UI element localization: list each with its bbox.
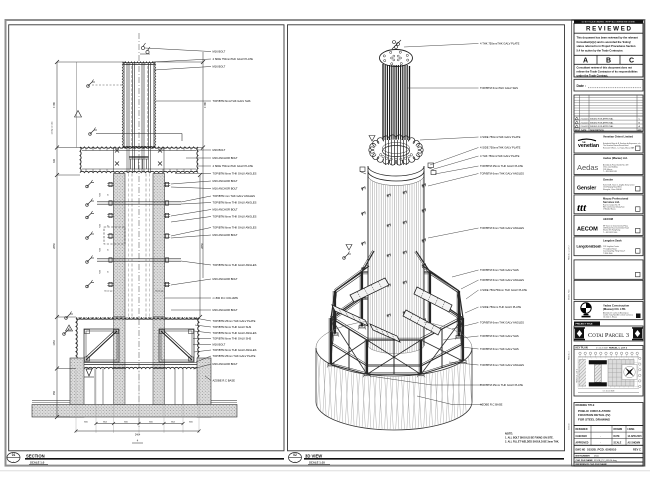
svg-text:TOP/BTM 6mm THK GALV ANGLES: TOP/BTM 6mm THK GALV ANGLES: [213, 348, 257, 352]
svg-text:2464: 2464: [135, 434, 141, 437]
svg-text:This document has been reviewe: This document has been reviewed by the r…: [577, 36, 638, 40]
svg-text:05/0510: 05/0510: [569, 424, 571, 431]
svg-text:M16 ANCHOR BOLT: M16 ANCHOR BOLT: [213, 187, 238, 191]
svg-text:status referred to in Projec: status referred to in Project Procedures…: [577, 44, 636, 48]
svg-text:2850: 2850: [200, 243, 204, 249]
svg-text:14-APR-2015: 14-APR-2015: [628, 435, 643, 438]
svg-text:∅ 800 R.C COLUMN: ∅ 800 R.C COLUMN: [213, 296, 238, 300]
svg-text:Shanghai, China 200040: Shanghai, China 200040: [603, 189, 622, 191]
svg-text:TOP/BTM 6mmTHK GALV SHS: TOP/BTM 6mmTHK GALV SHS: [213, 99, 251, 103]
svg-text:B: B: [606, 58, 611, 65]
svg-text:4 SIDE 750mm THK GALV PLATE: 4 SIDE 750mm THK GALV PLATE: [480, 305, 521, 309]
svg-text:AZOBE R.C BASE: AZOBE R.C BASE: [480, 403, 503, 407]
svg-text:4 SIDE 750mmTHK GALV PLATE: 4 SIDE 750mmTHK GALV PLATE: [480, 146, 521, 150]
svg-text:SCALE 1:5: SCALE 1:5: [30, 460, 45, 464]
svg-text:Grout typ: Grout typ: [155, 290, 164, 293]
svg-text:Langdon Seah: Langdon Seah: [603, 238, 622, 242]
svg-text:Date :: Date :: [577, 84, 586, 88]
svg-text:M16 BOLT: M16 BOLT: [213, 343, 226, 347]
svg-text:PARCEL 3: PARCEL 3: [568, 352, 571, 361]
svg-text:M16 ANCHOR BOLT: M16 ANCHOR BOLT: [213, 179, 238, 183]
svg-text:14 andar J, Macau: 14 andar J, Macau: [603, 316, 617, 319]
svg-text:AS SHOWN: AS SHOWN: [628, 441, 641, 444]
svg-text:ttt: ttt: [577, 202, 587, 214]
svg-text:Macau Professional: Macau Professional: [603, 197, 628, 201]
svg-text:M16 ANCHOR BOLT: M16 ANCHOR BOLT: [213, 208, 238, 212]
svg-text:TOP/BTM 6mm THK GALV ANGLES: TOP/BTM 6mm THK GALV ANGLES: [213, 331, 257, 335]
svg-text:M16 ANCHOR BOLT: M16 ANCHOR BOLT: [213, 233, 238, 237]
svg-text:DRAWN: DRAWN: [614, 428, 623, 431]
svg-text:TOP/BTM 6mm THK GALV ANGLES: TOP/BTM 6mm THK GALV ANGLES: [480, 278, 524, 282]
svg-text:M16 BOLT: M16 BOLT: [213, 148, 226, 152]
svg-text:FOR STEEL DRAWING: FOR STEEL DRAWING: [578, 418, 611, 422]
svg-text:PUBLIC CIRCULATION: PUBLIC CIRCULATION: [578, 409, 610, 413]
svg-text:LWNG: LWNG: [628, 429, 635, 431]
svg-text:DWG NO: DWG NO: [576, 450, 586, 452]
svg-text:SECTION: SECTION: [26, 453, 45, 458]
svg-text:Gensler: Gensler: [577, 186, 596, 192]
svg-text:50: 50: [108, 271, 110, 273]
svg-text:Executive Offices - L2, Taipa,: Executive Offices - L2, Taipa, Macau SAR: [603, 146, 635, 149]
svg-text:01: 01: [12, 453, 16, 457]
svg-text:M16 BOLT: M16 BOLT: [213, 50, 226, 54]
svg-text:COTAI PARCEL 3: COTAI PARCEL 3: [588, 332, 629, 339]
svg-text:TOP/BTM 6mm THK GALV SHS: TOP/BTM 6mm THK GALV SHS: [480, 268, 519, 272]
svg-text:C: C: [629, 58, 634, 65]
svg-text:TOP/BTM 6mm THK GALV ANGLES: TOP/BTM 6mm THK GALV ANGLES: [480, 363, 524, 367]
svg-text:TOP/BTM 25mm THK GALV PLATE: TOP/BTM 25mm THK GALV PLATE: [213, 319, 256, 323]
svg-text:AECOM: AECOM: [577, 227, 598, 233]
svg-text:AECOM: AECOM: [603, 217, 614, 221]
svg-text:Services Ltd.: Services Ltd.: [603, 200, 620, 204]
svg-text:Consultant review of this docu: Consultant review of this document does …: [577, 66, 633, 70]
svg-text:DESIGNED: DESIGNED: [576, 429, 588, 431]
svg-text:T + 852 3922 9000: T + 852 3922 9000: [603, 232, 617, 234]
svg-text:SCALE 1:10: SCALE 1:10: [309, 460, 325, 464]
svg-text:4 THK 750mmTHK GALV PLATE: 4 THK 750mmTHK GALV PLATE: [480, 154, 520, 158]
svg-text:TOP/BTM 6mm THK GALV SHS: TOP/BTM 6mm THK GALV SHS: [213, 325, 252, 329]
svg-text:M16 ANCHOR BOLT: M16 ANCHOR BOLT: [213, 362, 238, 366]
svg-text:PROJECT TITLE: PROJECT TITLE: [576, 324, 594, 326]
svg-text:APPROVED: APPROVED: [576, 441, 589, 444]
svg-text:M16 BOLT: M16 BOLT: [213, 65, 226, 69]
svg-text:Venetian Orient Limited: Venetian Orient Limited: [603, 134, 633, 138]
svg-text:TOP/BTM 6mm THK GALV ANGLES: TOP/BTM 6mm THK GALV ANGLES: [213, 172, 257, 176]
svg-text:-: -: [13, 460, 14, 464]
svg-text:TOP/BTM 6mm THK GALV ANGLES: TOP/BTM 6mm THK GALV ANGLES: [213, 215, 257, 219]
svg-text:-: -: [295, 460, 296, 464]
svg-text:T 2830 3500: T 2830 3500: [603, 253, 613, 255]
svg-text:7500: 7500: [100, 224, 102, 228]
svg-text:50: 50: [108, 225, 110, 227]
svg-text:TOP/BTM 6mm THK GALV ANGLES: TOP/BTM 6mm THK GALV ANGLES: [213, 263, 257, 267]
svg-text:Grout typ: Grout typ: [104, 290, 113, 293]
svg-text:BIM NUMBER: BIM NUMBER: [576, 456, 591, 458]
svg-text:300: 300: [53, 158, 56, 163]
svg-text:TOP/BTM 6mm THK GALV SHS: TOP/BTM 6mm THK GALV SHS: [213, 337, 252, 341]
svg-text:Aedas (Macau) Ltd.: Aedas (Macau) Ltd.: [603, 156, 628, 160]
svg-text:2850: 2850: [52, 243, 56, 249]
svg-text:DRAWING TITLE: DRAWING TITLE: [576, 404, 595, 407]
svg-text:TOP/BTM 25mm THK GALV PLATE: TOP/BTM 25mm THK GALV PLATE: [480, 383, 523, 387]
svg-text:7500: 7500: [100, 270, 102, 274]
svg-text:TOP/BTM 6mm THK GALV ANGLES: TOP/BTM 6mm THK GALV ANGLES: [213, 226, 257, 230]
svg-text:TOP/BTM 6mm THK GALV ANGLES: TOP/BTM 6mm THK GALV ANGLES: [480, 321, 524, 325]
svg-text:02: 02: [293, 453, 297, 457]
svg-text:TOP/BTM 25mm THK GALV PLATE: TOP/BTM 25mm THK GALV PLATE: [480, 164, 523, 168]
svg-text:4 SIDE 750mmTHK GALV PLATE: 4 SIDE 750mmTHK GALV PLATE: [480, 135, 521, 139]
svg-text:0 5 10 20 30M: 0 5 10 20 30M: [603, 391, 615, 393]
svg-text:1786: 1786: [52, 102, 56, 108]
svg-text:M16 ANCHOR BOLT: M16 ANCHOR BOLT: [213, 156, 238, 160]
svg-text:CHECKED: CHECKED: [576, 436, 588, 438]
svg-text:M16 ANCHOR BOLT: M16 ANCHOR BOLT: [213, 308, 238, 312]
svg-text:Aedas: Aedas: [577, 163, 599, 172]
svg-text:TOP/BTM 6mmTHK GALV SHS: TOP/BTM 6mmTHK GALV SHS: [480, 86, 518, 90]
svg-text:relieve the Trade Contractor o: relieve the Trade Contractor of its resp…: [577, 70, 639, 74]
svg-text:TOP/BTM mm THK GALV ANGLES: TOP/BTM mm THK GALV ANGLES: [213, 194, 256, 198]
svg-text:50: 50: [108, 194, 110, 196]
svg-text:REV C: REV C: [633, 448, 641, 452]
svg-text:1786: 1786: [203, 102, 207, 108]
svg-text:3D VIEW: 3D VIEW: [305, 453, 322, 458]
svg-text:SCALE: SCALE: [614, 441, 622, 444]
svg-text:under the Trade Contract.: under the Trade Contract.: [577, 73, 609, 77]
svg-text:REFERENCE CAD FILE NAME: REFERENCE CAD FILE NAME: [576, 463, 608, 466]
svg-text:Langdon&Seah: Langdon&Seah: [577, 245, 602, 249]
svg-text:TOP/BTM 6mm THK GALV ANGLES: TOP/BTM 6mm THK GALV ANGLES: [480, 226, 524, 230]
svg-text:TOP/BTM 6mm THK GALV ANGLES: TOP/BTM 6mm THK GALV ANGLES: [213, 201, 257, 205]
svg-text:TOP/BTM 6mm THK GALV SHS: TOP/BTM 6mm THK GALV SHS: [480, 334, 519, 338]
svg-text:A: A: [583, 58, 588, 65]
svg-text:1050: 1050: [53, 340, 56, 346]
svg-text:MODEL FILE: MODEL FILE: [569, 289, 571, 300]
svg-text:4 THK 750mmTHK GALV PLATE: 4 THK 750mmTHK GALV PLATE: [480, 42, 520, 46]
svg-text:0510: 0510: [594, 456, 600, 458]
svg-text:(verify on site): (verify on site): [51, 121, 54, 134]
svg-text:7500: 7500: [100, 193, 102, 197]
svg-text:5152B_PC_0510S.dwg: 5152B_PC_0510S.dwg: [594, 460, 618, 462]
svg-text:2. ALL FILLET WELDED SHOULD BE: 2. ALL FILLET WELDED SHOULD BE 3mm THK.: [505, 441, 560, 444]
svg-text:4 SIDE 750mmTHK GALV PLATE: 4 SIDE 750mmTHK GALV PLATE: [213, 57, 254, 61]
svg-text:M16 ANCHOR BOLT: M16 ANCHOR BOLT: [213, 277, 238, 281]
svg-text:CAD FILE NAME: CAD FILE NAME: [576, 459, 594, 462]
svg-text:(Macau) CO. LTD.: (Macau) CO. LTD.: [603, 307, 626, 311]
svg-text:Gensler: Gensler: [603, 177, 613, 181]
svg-text:TOP/BTM 25mm THK GALV PLATE: TOP/BTM 25mm THK GALV PLATE: [213, 354, 256, 358]
svg-text:5152B_PCD_05/0510: 5152B_PCD_05/0510: [587, 448, 617, 452]
svg-text:PARCEL 1, LOT 1: PARCEL 1, LOT 1: [576, 369, 579, 383]
svg-text:R E V I E W E D: R E V I E W E D: [586, 26, 632, 33]
svg-text:TOP/BTM 6mm THK GALV SHS: TOP/BTM 6mm THK GALV SHS: [480, 347, 519, 351]
svg-text:7500: 7500: [100, 248, 102, 252]
svg-text:4 SIDE 750mmTHK GALV PLATE: 4 SIDE 750mmTHK GALV PLATE: [213, 164, 254, 168]
svg-text:4 SIDE 750x750mm THK GALV PLAT: 4 SIDE 750x750mm THK GALV PLATE: [480, 288, 527, 292]
svg-text:950: 950: [53, 390, 56, 395]
svg-text:5.4 for action by the Trade Co: 5.4 for action by the Trade Contractor.: [577, 48, 624, 52]
svg-text:1. ALL BOLT SHOULD BE FIXING O: 1. ALL BOLT SHOULD BE FIXING ON SITE.: [505, 437, 554, 440]
svg-text:AZOBE R.C BASE: AZOBE R.C BASE: [213, 379, 236, 383]
svg-text:Consultant(s)(c) and is accord: Consultant(s)(c) and is accorded the 'li…: [577, 40, 632, 44]
svg-text:50: 50: [108, 249, 110, 251]
svg-text:DATE: DATE: [614, 435, 621, 438]
svg-text:17 Andar, Macau: 17 Andar, Macau: [603, 208, 616, 211]
svg-text:FOUNTAIN DETAIL (IV): FOUNTAIN DETAIL (IV): [578, 413, 610, 417]
svg-text:NOTE:: NOTE:: [505, 432, 513, 436]
svg-text:TOP/BTM 6mm THK GALV ANGLES: TOP/BTM 6mm THK GALV ANGLES: [480, 172, 524, 176]
svg-text:PARCEL 1, LOT 2: PARCEL 1, LOT 2: [568, 246, 571, 260]
svg-text:T + 853 2833 1811: T + 853 2833 1811: [603, 171, 617, 173]
